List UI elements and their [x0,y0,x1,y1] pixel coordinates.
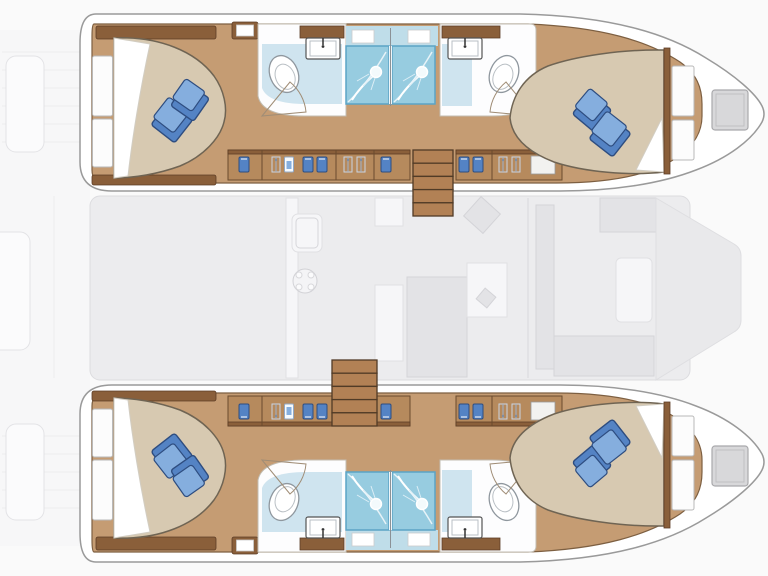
stair-step [413,150,453,163]
foredeck [656,198,741,380]
stair-step [413,203,453,216]
catamaran-floor-plan [0,0,768,576]
starboard-hull [80,385,764,562]
transom-seat [6,424,44,520]
stair-step [332,360,377,373]
floor-plan-canvas [0,0,768,576]
stair-step [332,400,377,413]
swim-platform [0,232,30,350]
stair-step [332,373,377,386]
stair-step [413,176,453,189]
starboard-staircase [332,360,377,426]
saloon [90,196,690,380]
stair-step [332,413,377,426]
galley-island [407,277,467,377]
port-staircase [413,150,453,216]
nav-station [467,263,507,317]
saloon-cabinet [375,198,403,226]
stair-step [413,190,453,203]
saloon-cabinet [375,285,403,361]
aft-deck [0,30,90,546]
galley-sink-icon [292,214,322,252]
saloon-table [616,258,652,322]
stair-step [413,163,453,176]
stair-step [332,386,377,399]
transom-seat [6,56,44,152]
stove-icon [293,269,317,293]
